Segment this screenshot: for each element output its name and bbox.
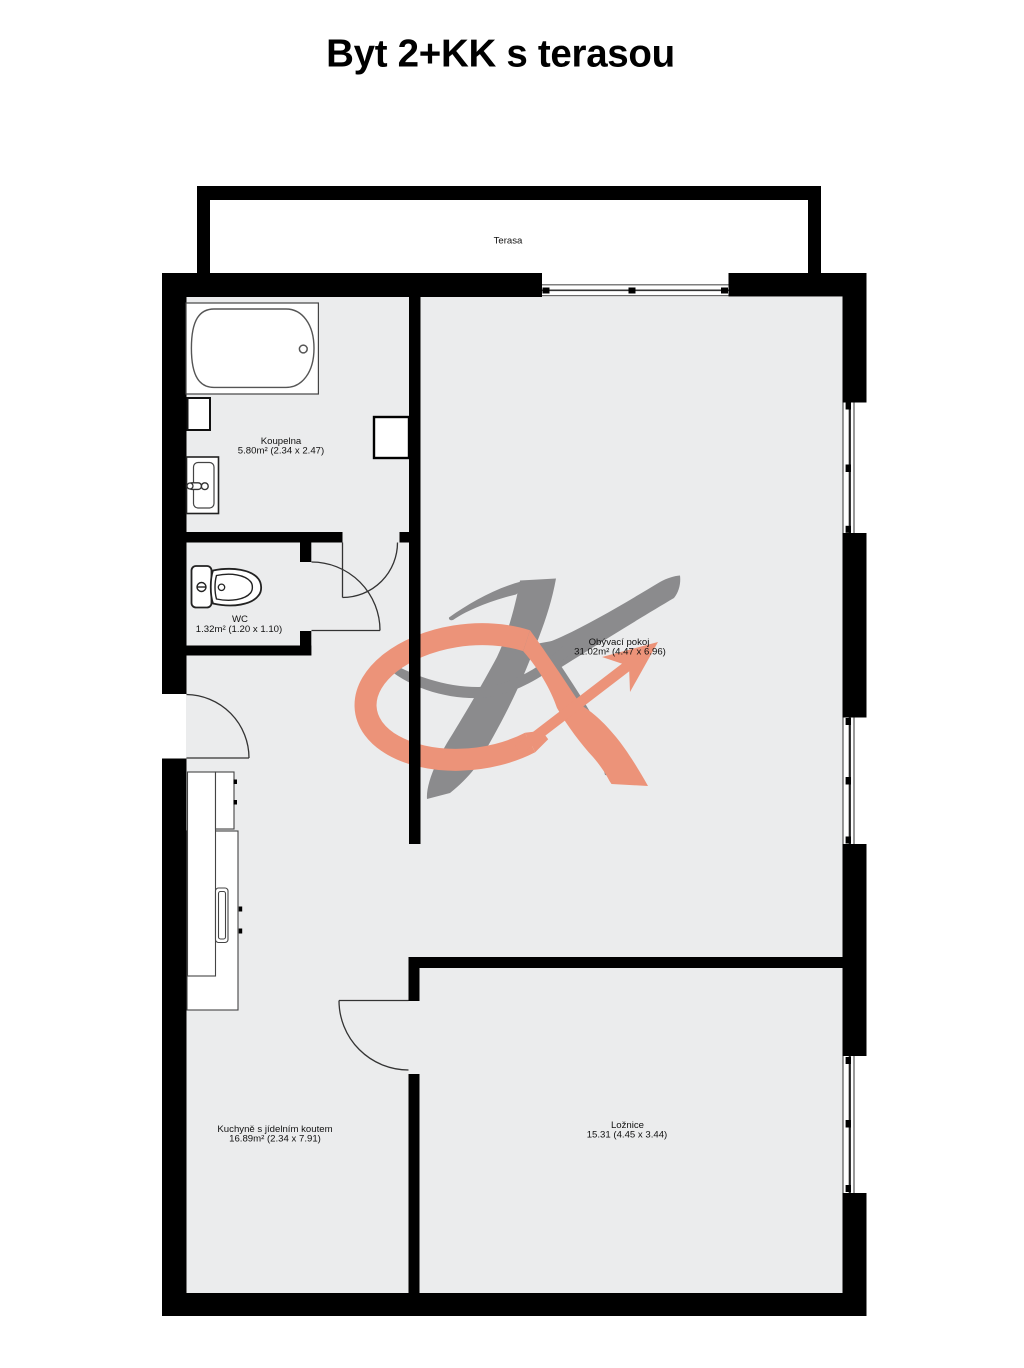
svg-text:Byt 2+KK s terasou: Byt 2+KK s terasou [326,33,675,76]
svg-text:31.02m² (4.47 x 6.96): 31.02m² (4.47 x 6.96) [574,646,666,657]
svg-text:15.31 (4.45 x 3.44): 15.31 (4.45 x 3.44) [587,1129,668,1140]
svg-text:Terasa: Terasa [494,236,523,247]
svg-text:16.89m² (2.34 x 7.91): 16.89m² (2.34 x 7.91) [229,1133,321,1144]
svg-text:1.32m² (1.20 x 1.10): 1.32m² (1.20 x 1.10) [196,624,282,635]
svg-text:5.80m² (2.34 x 2.47): 5.80m² (2.34 x 2.47) [238,446,324,457]
